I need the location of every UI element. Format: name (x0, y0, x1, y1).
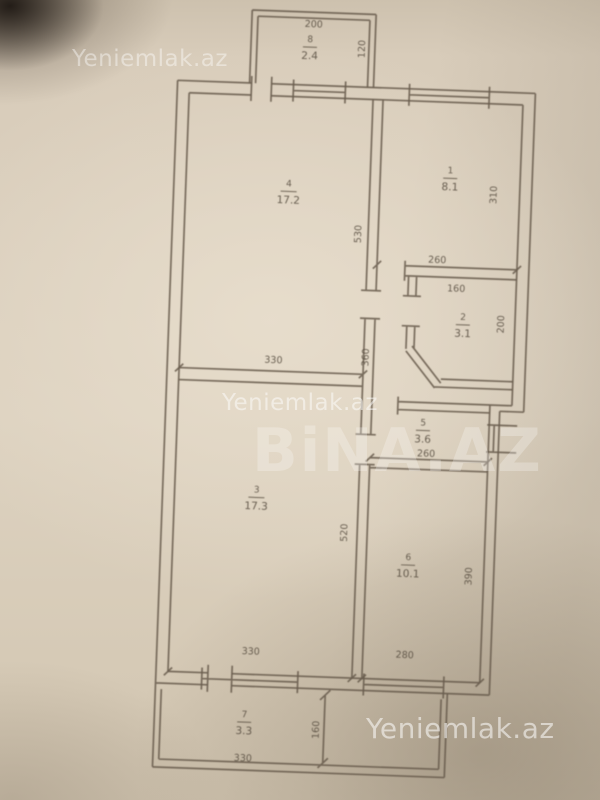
balcony-top-number: 8 (307, 35, 313, 45)
room6-area: 10.1 (396, 568, 420, 581)
room1-number: 1 (447, 166, 453, 176)
fraction-line (443, 178, 457, 179)
dim-room4-height: 530 (353, 225, 365, 244)
room-label-2: 2 3.1 (454, 313, 472, 341)
dim-balcony-top-width: 200 (304, 19, 323, 31)
dim-room3-width: 330 (241, 646, 260, 658)
floor-plan-drawing: 8 2.4 4 17.2 1 8.1 2 3.1 5 (0, 0, 600, 800)
room6-number: 6 (405, 553, 411, 563)
fraction-line (303, 47, 317, 48)
fraction-line (281, 191, 297, 192)
balcony-bottom-area: 3.3 (235, 725, 252, 738)
room2-number: 2 (460, 313, 466, 323)
dim-room6-height: 390 (463, 567, 475, 586)
dim-room4-width: 330 (264, 355, 283, 367)
room-label-1: 1 8.1 (441, 166, 459, 194)
dim-balcony-top-depth: 120 (357, 40, 369, 59)
dim-room2-width: 160 (447, 283, 466, 295)
room5-area: 3.6 (414, 433, 431, 446)
room4-number: 4 (286, 179, 292, 189)
room-label-balcony-bottom: 7 3.3 (235, 710, 253, 738)
room-label-6: 6 10.1 (396, 553, 420, 581)
dim-room5-width: 260 (417, 448, 436, 460)
room2-area: 3.1 (454, 328, 471, 341)
room1-area: 8.1 (441, 181, 458, 194)
room3-area: 17.3 (244, 500, 268, 513)
dim-room1-width: 260 (428, 255, 447, 267)
room-label-5: 5 3.6 (414, 418, 432, 446)
interior-walls (164, 93, 527, 688)
room5-number: 5 (420, 418, 426, 428)
dim-room2-height: 200 (496, 315, 508, 334)
room-label-balcony-top: 8 2.4 (301, 35, 319, 63)
dim-balcony-bottom-depth: 160 (311, 721, 323, 740)
dim-room1-height: 310 (488, 186, 500, 205)
floor-plan-photo: 8 2.4 4 17.2 1 8.1 2 3.1 5 (0, 0, 600, 800)
outer-walls (152, 80, 535, 780)
fraction-line (416, 430, 430, 431)
fraction-line (456, 325, 470, 326)
dim-room6-width: 280 (395, 650, 414, 662)
dim-balcony-bottom-width: 330 (234, 753, 253, 765)
fraction-line (248, 497, 264, 498)
dim-hall-height: 360 (360, 348, 372, 367)
fraction-line (401, 565, 415, 566)
balcony-top-area: 2.4 (301, 50, 318, 63)
dim-room3-height: 520 (339, 523, 351, 542)
room-label-3: 3 17.3 (244, 485, 268, 513)
fraction-line (237, 722, 251, 723)
balcony-bottom-walls (152, 683, 447, 778)
room-label-4: 4 17.2 (276, 179, 300, 207)
balcony-bottom-number: 7 (241, 710, 247, 720)
room3-number: 3 (254, 485, 260, 495)
room4-area: 17.2 (276, 194, 300, 207)
